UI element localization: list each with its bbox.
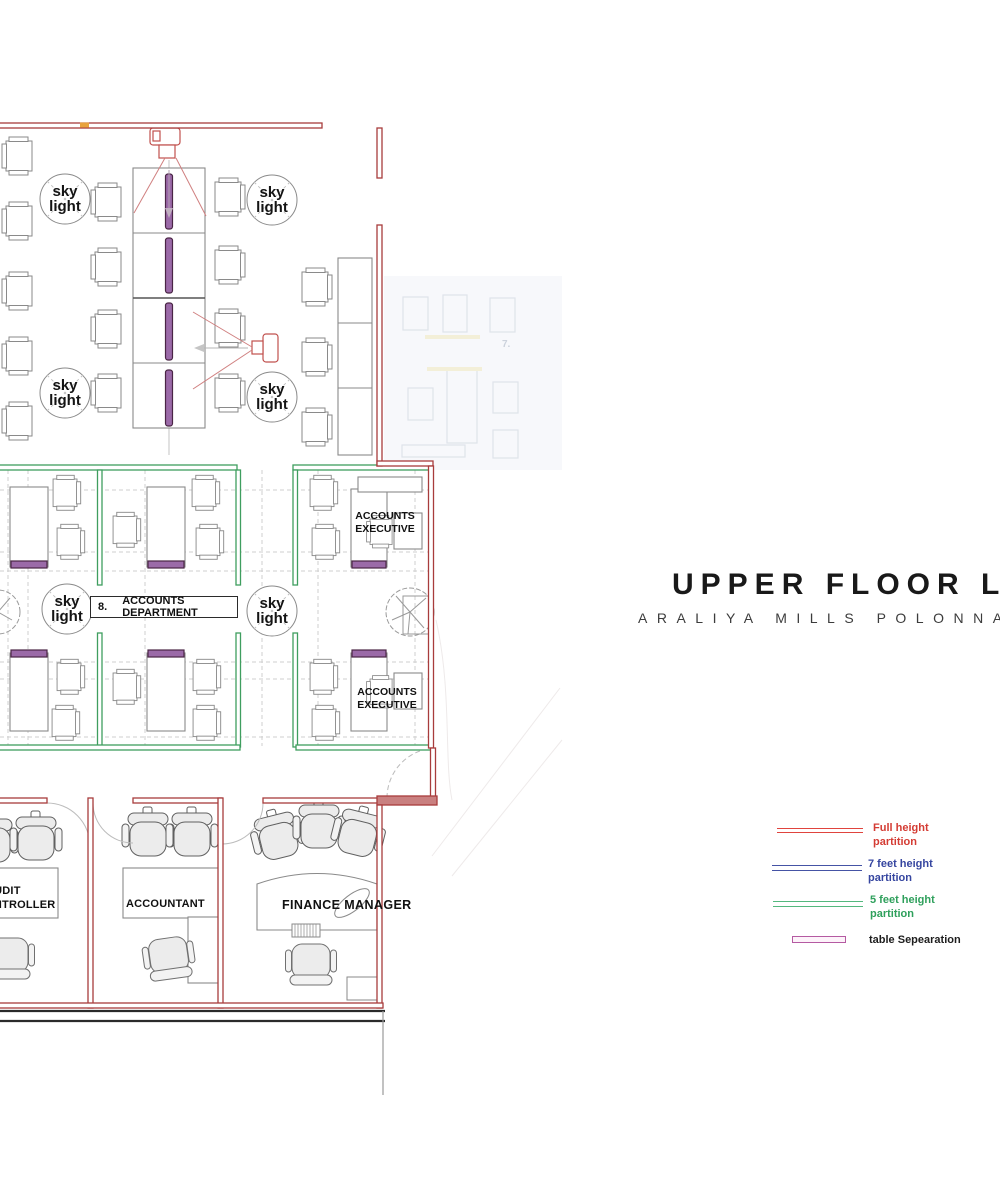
skylight-label: sky light	[35, 378, 95, 408]
legend-swatch-table-separation	[792, 936, 846, 943]
wall-marker	[80, 123, 89, 128]
chairs-table-left	[91, 183, 121, 412]
department-name: ACCOUNTS DEPARTMENT	[122, 595, 237, 619]
sheet-subtitle: ARALIYA MILLS POLONNARUWA	[638, 610, 1000, 626]
chairs-table-right	[215, 178, 245, 412]
projector-top-icon	[150, 128, 180, 158]
faded-adjacent-zone	[384, 276, 562, 876]
accounts-executive-label: ACCOUNTS EXECUTIVE	[342, 686, 432, 712]
accounts-executive-label: ACCOUNTS EXECUTIVE	[340, 510, 430, 536]
legend-swatch-5ft	[773, 901, 863, 907]
skylight-label: sky light	[35, 184, 95, 214]
faded-zone-number: 7.	[502, 339, 510, 350]
audit-controller-label-line1: AUDIT	[0, 885, 21, 897]
skylight-label: sky light	[242, 382, 302, 412]
site-boundary	[0, 1011, 385, 1095]
legend-label-full-height: Full height partition	[873, 822, 929, 849]
skylight-label-line1: sky	[35, 184, 95, 199]
legend-swatch-full-height	[777, 828, 863, 833]
legend-swatch-7ft	[772, 865, 862, 871]
legend-label-table-separation: table Sepearation	[869, 934, 961, 948]
legend-label-7ft: 7 feet height partition	[868, 858, 933, 885]
accounts-department-label: 8. ACCOUNTS DEPARTMENT	[90, 596, 238, 618]
department-number: 8.	[98, 601, 107, 613]
floor-plan-sheet: sky light sky light sky light sky light …	[0, 0, 1000, 1200]
skylight-label: sky light	[242, 185, 302, 215]
accountant-label: ACCOUNTANT	[126, 898, 205, 910]
chairs-left-wall	[2, 137, 32, 440]
finance-manager-label: FINANCE MANAGER	[282, 898, 412, 912]
skylight-label: sky light	[242, 596, 302, 626]
legend-label-5ft: 5 feet height partition	[870, 894, 935, 921]
skylight-label-line2: light	[35, 199, 95, 214]
audit-controller-label-line2: CONTROLLER	[0, 899, 55, 911]
skylight-label: sky light	[37, 594, 97, 624]
accountant-desk	[123, 868, 220, 918]
sheet-title: UPPER FLOOR LAYOUT	[672, 568, 1000, 602]
projector-side-icon	[252, 334, 278, 362]
chairs-cabinet-side	[302, 268, 332, 446]
